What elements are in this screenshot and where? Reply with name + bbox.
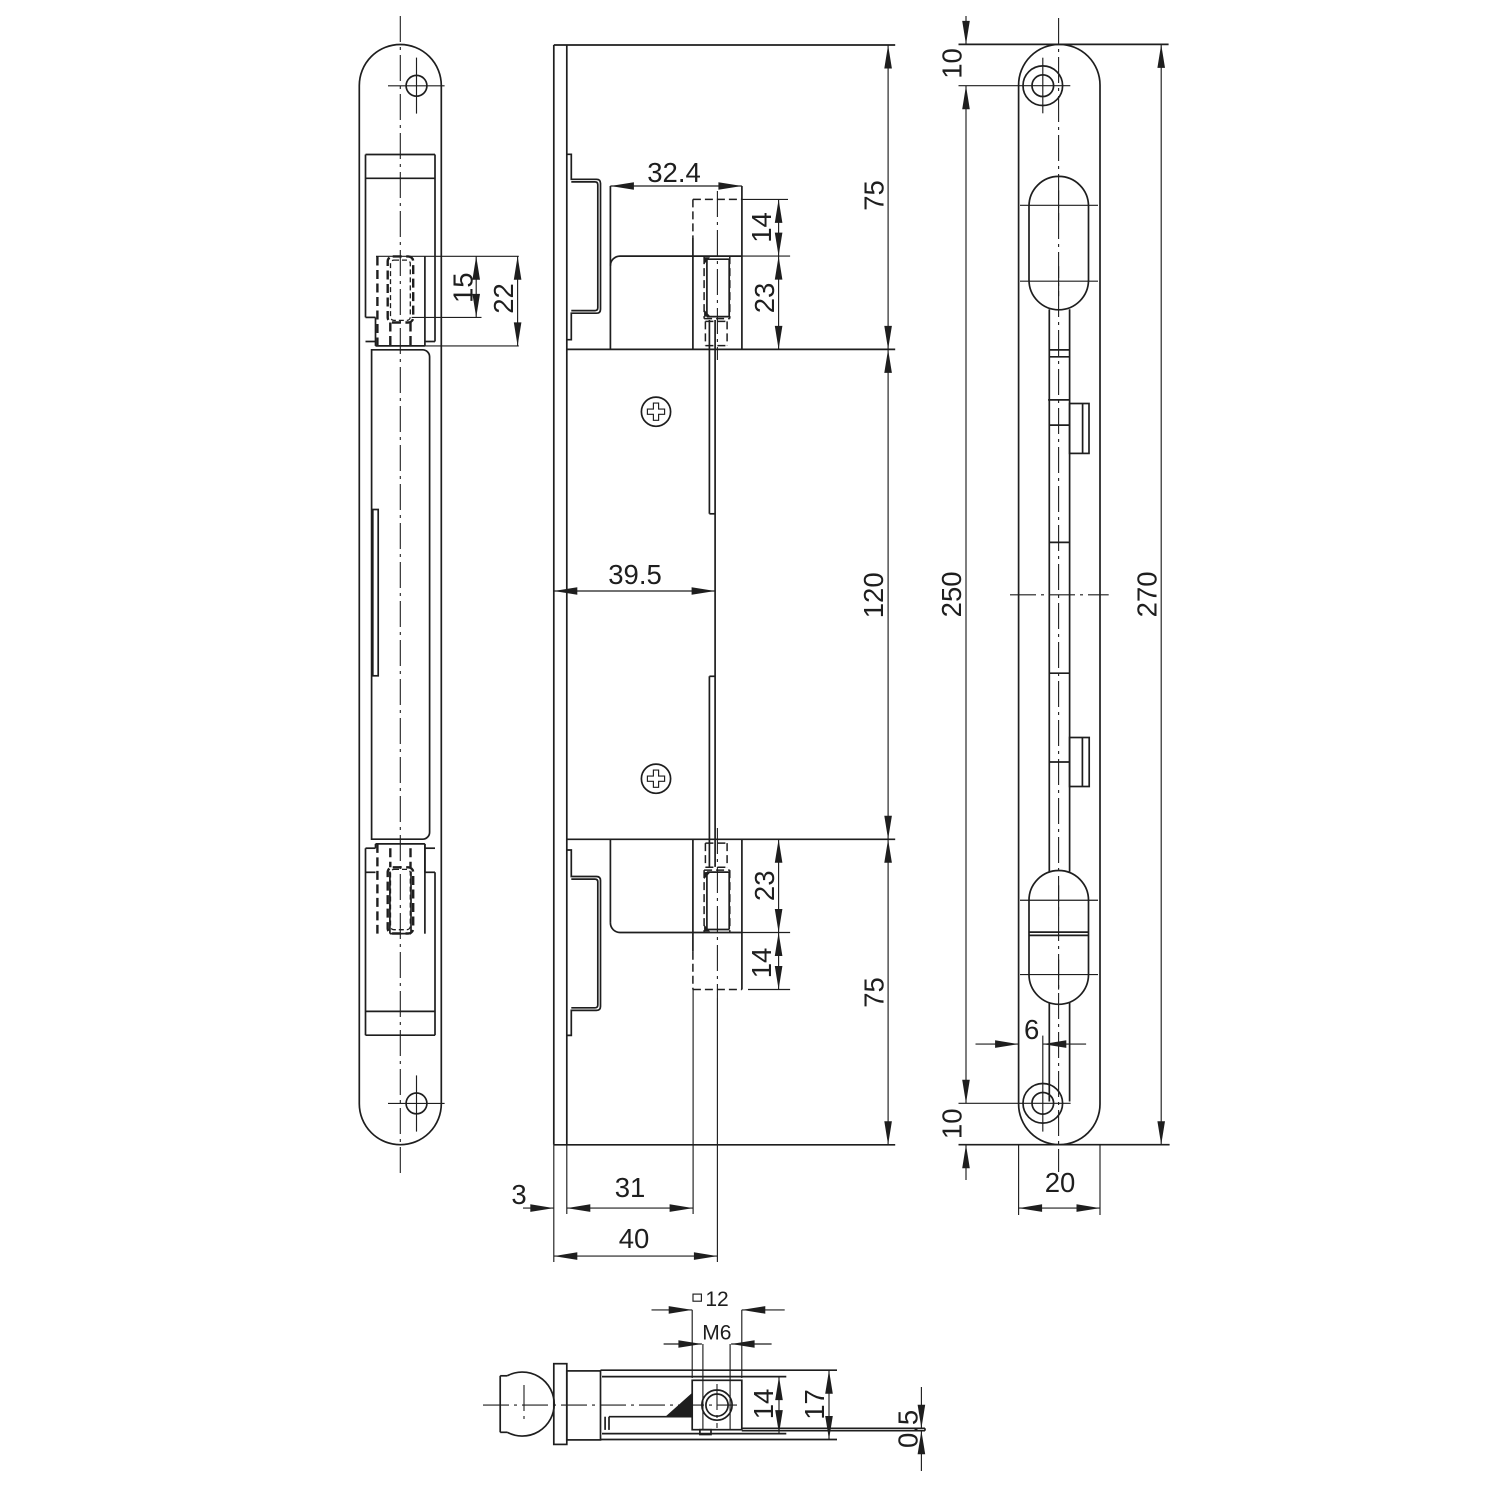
- svg-text:17: 17: [799, 1389, 830, 1420]
- svg-text:23: 23: [749, 871, 780, 902]
- svg-text:0.5: 0.5: [893, 1410, 924, 1448]
- svg-text:14: 14: [746, 948, 777, 979]
- svg-text:12: 12: [705, 1288, 728, 1311]
- svg-text:23: 23: [749, 283, 780, 314]
- svg-text:75: 75: [858, 180, 889, 211]
- svg-text:M6: M6: [702, 1322, 731, 1345]
- svg-text:40: 40: [619, 1223, 650, 1254]
- svg-text:10: 10: [936, 48, 967, 79]
- svg-text:20: 20: [1045, 1167, 1076, 1198]
- svg-text:14: 14: [748, 1389, 779, 1420]
- svg-text:10: 10: [936, 1109, 967, 1140]
- svg-text:31: 31: [615, 1172, 646, 1203]
- svg-text:6: 6: [1024, 1014, 1039, 1045]
- svg-text:270: 270: [1131, 571, 1162, 617]
- svg-text:22: 22: [488, 283, 519, 314]
- svg-text:32.4: 32.4: [647, 157, 701, 188]
- svg-text:15: 15: [447, 272, 478, 303]
- svg-text:250: 250: [936, 571, 967, 617]
- svg-text:39.5: 39.5: [608, 559, 662, 590]
- svg-text:75: 75: [858, 977, 889, 1008]
- svg-text:120: 120: [858, 572, 889, 618]
- svg-text:14: 14: [746, 212, 777, 243]
- svg-text:3: 3: [511, 1179, 526, 1210]
